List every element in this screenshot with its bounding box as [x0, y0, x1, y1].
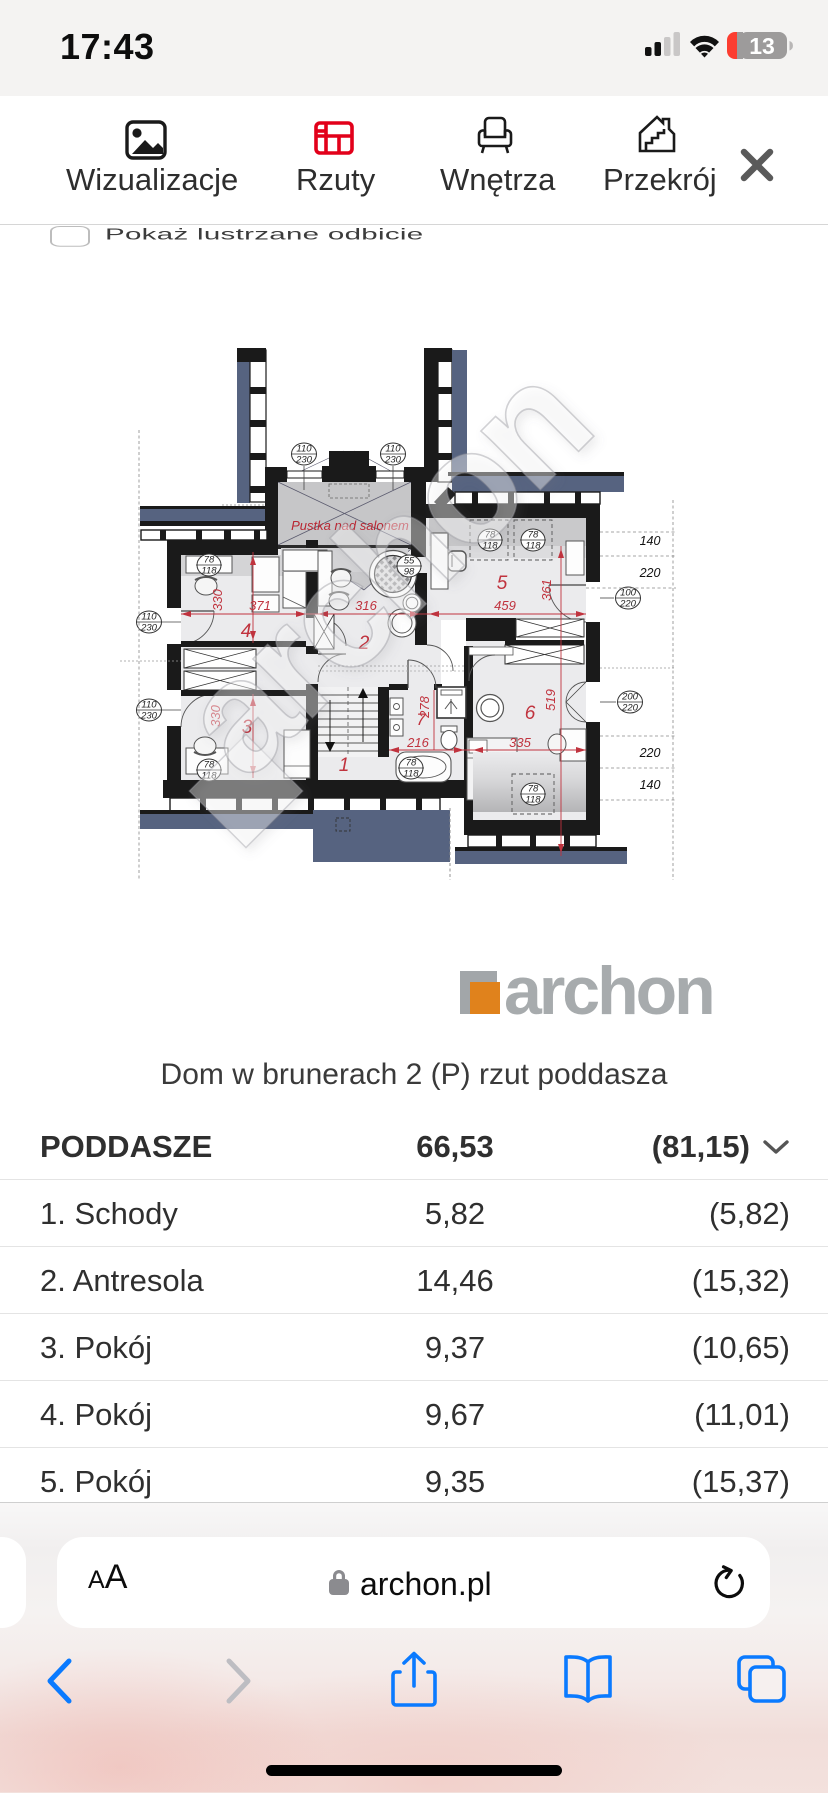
svg-text:220: 220	[619, 599, 637, 610]
svg-text:459: 459	[494, 598, 516, 613]
svg-text:6: 6	[525, 703, 536, 724]
svg-text:230: 230	[295, 455, 313, 466]
svg-text:140: 140	[640, 778, 661, 792]
svg-text:1: 1	[339, 755, 350, 776]
svg-text:78: 78	[528, 784, 539, 795]
svg-text:361: 361	[539, 579, 554, 601]
svg-text:278: 278	[417, 695, 432, 718]
svg-text:110: 110	[141, 612, 157, 623]
svg-text:220: 220	[621, 703, 639, 714]
svg-text:216: 216	[406, 735, 429, 750]
svg-text:230: 230	[140, 711, 158, 722]
svg-text:110: 110	[296, 444, 312, 455]
svg-text:100: 100	[620, 588, 637, 599]
svg-text:archon: archon	[504, 962, 713, 1022]
svg-text:118: 118	[525, 795, 541, 806]
svg-text:335: 335	[509, 735, 531, 750]
svg-text:110: 110	[141, 700, 157, 711]
svg-text:220: 220	[639, 566, 661, 580]
svg-text:230: 230	[140, 623, 158, 634]
svg-text:78: 78	[204, 555, 215, 566]
svg-text:140: 140	[640, 534, 661, 548]
svg-text:118: 118	[403, 769, 419, 780]
svg-text:519: 519	[543, 689, 558, 711]
svg-text:220: 220	[639, 746, 661, 760]
svg-text:118: 118	[201, 566, 217, 577]
svg-text:78: 78	[406, 758, 417, 769]
svg-text:200: 200	[621, 692, 639, 703]
